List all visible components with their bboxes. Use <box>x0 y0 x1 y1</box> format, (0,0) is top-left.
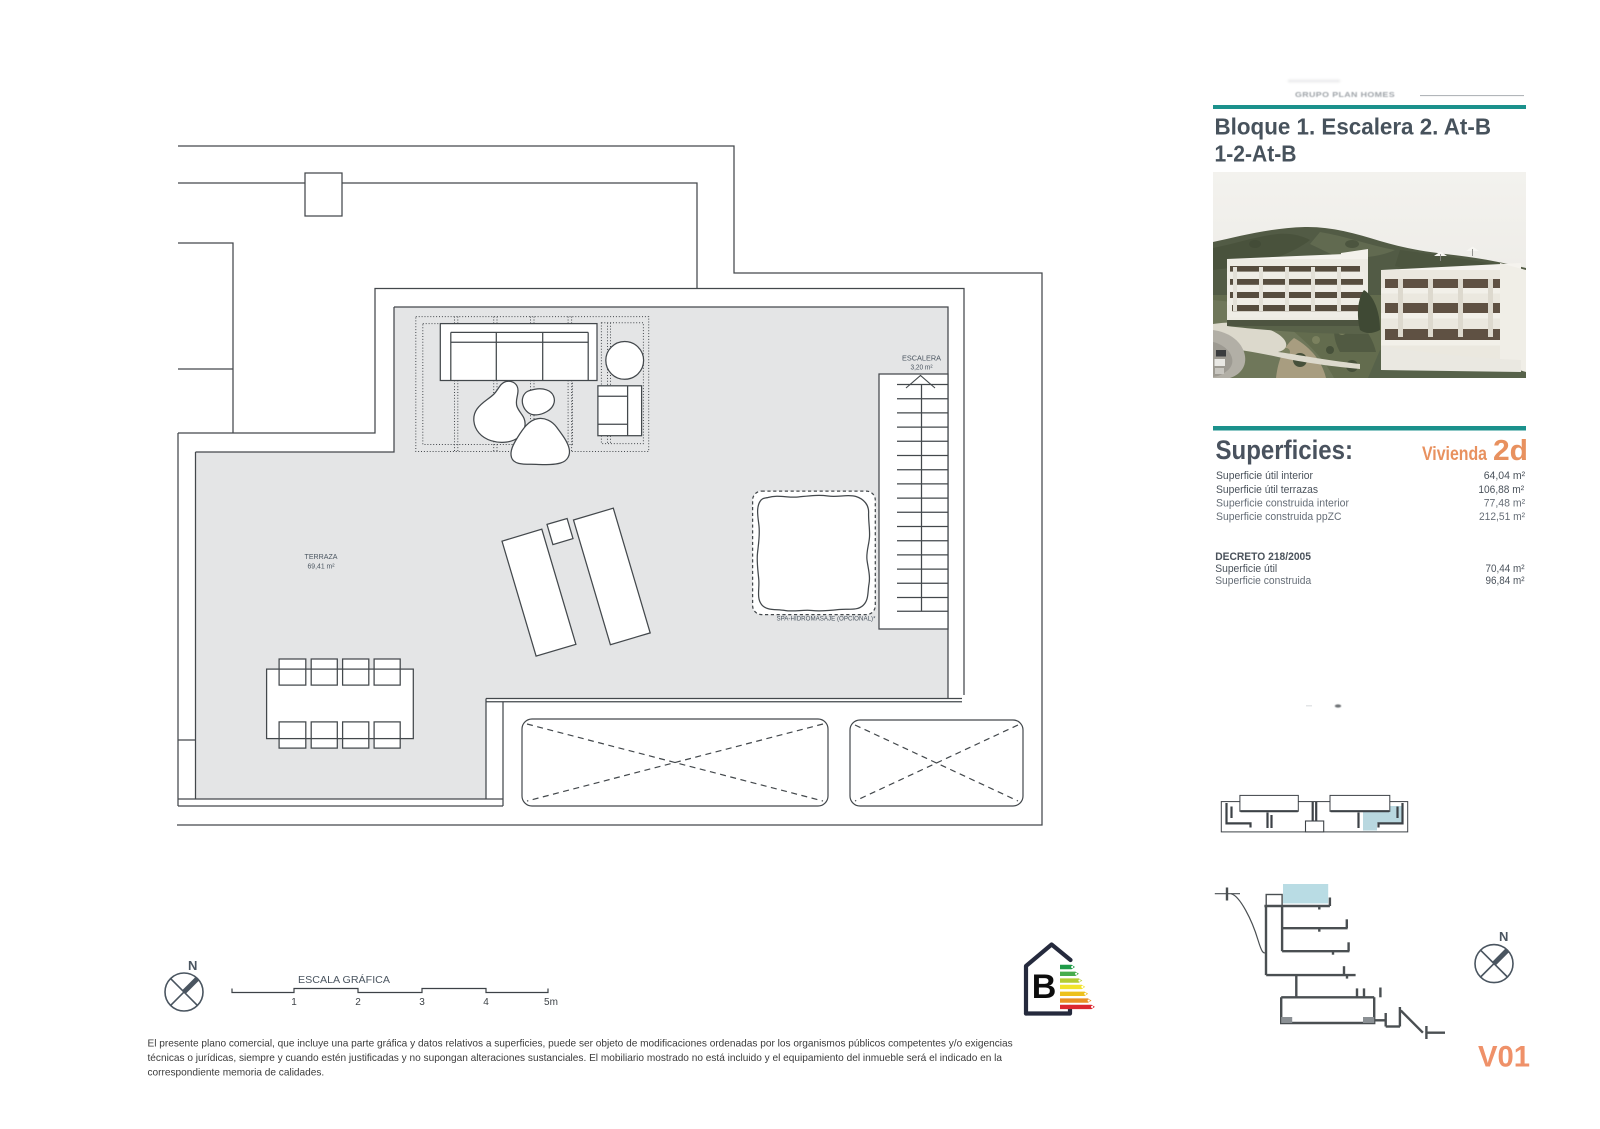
svg-text:SPA-HIDROMASAJE (OPCIONAL)*: SPA-HIDROMASAJE (OPCIONAL)* <box>777 616 876 623</box>
svg-text:Superficie útil terrazas: Superficie útil terrazas <box>1216 484 1318 496</box>
svg-text:técnicas o jurídicas, siempre: técnicas o jurídicas, siempre y cuando e… <box>148 1053 1003 1064</box>
svg-text:Superficie construida ppZC: Superficie construida ppZC <box>1216 511 1342 523</box>
svg-text:Vivienda: Vivienda <box>1422 444 1487 465</box>
svg-text:GRUPO PLAN HOMES: GRUPO PLAN HOMES <box>1295 92 1395 99</box>
svg-text:ESCALA GRÁFICA: ESCALA GRÁFICA <box>298 973 390 986</box>
svg-text:correspondiente memoria de cal: correspondiente memoria de calidades. <box>148 1068 325 1079</box>
svg-text:El presente plano comercial, q: El presente plano comercial, que incluye… <box>148 1039 1013 1050</box>
svg-text:69,41 m²: 69,41 m² <box>308 564 336 571</box>
svg-text:3: 3 <box>419 997 425 1008</box>
svg-text:1-2-At-B: 1-2-At-B <box>1215 141 1297 167</box>
svg-text:77,48 m²: 77,48 m² <box>1484 497 1526 509</box>
svg-text:1: 1 <box>291 997 297 1008</box>
svg-text:V01: V01 <box>1478 1041 1530 1074</box>
svg-text:ESCALERA: ESCALERA <box>902 354 941 363</box>
svg-text:B: B <box>1032 968 1057 1006</box>
svg-text:106,88 m²: 106,88 m² <box>1478 484 1524 496</box>
svg-text:DECRETO 218/2005: DECRETO 218/2005 <box>1215 551 1311 563</box>
svg-text:Superficie construida interior: Superficie construida interior <box>1216 497 1349 509</box>
svg-text:Superficie construida: Superficie construida <box>1215 575 1312 587</box>
svg-text:N: N <box>1499 929 1508 944</box>
svg-text:96,84 m²: 96,84 m² <box>1486 575 1525 587</box>
svg-text:TERRAZA: TERRAZA <box>305 552 338 561</box>
svg-text:Bloque 1. Escalera 2. At-B: Bloque 1. Escalera 2. At-B <box>1215 114 1492 140</box>
svg-text:N: N <box>188 958 197 973</box>
svg-text:3,20 m²: 3,20 m² <box>911 365 934 372</box>
svg-text:Superficie útil: Superficie útil <box>1215 563 1277 575</box>
svg-text:2d: 2d <box>1493 435 1528 467</box>
svg-text:2: 2 <box>355 997 361 1008</box>
svg-text:Superficies:: Superficies: <box>1216 435 1354 465</box>
svg-text:212,51 m²: 212,51 m² <box>1479 511 1525 523</box>
svg-text:64,04 m²: 64,04 m² <box>1484 470 1526 482</box>
svg-text:70,44 m²: 70,44 m² <box>1486 563 1525 575</box>
svg-text:Superficie útil interior: Superficie útil interior <box>1216 470 1313 482</box>
svg-text:4: 4 <box>483 997 489 1008</box>
svg-text:5m: 5m <box>544 997 558 1008</box>
